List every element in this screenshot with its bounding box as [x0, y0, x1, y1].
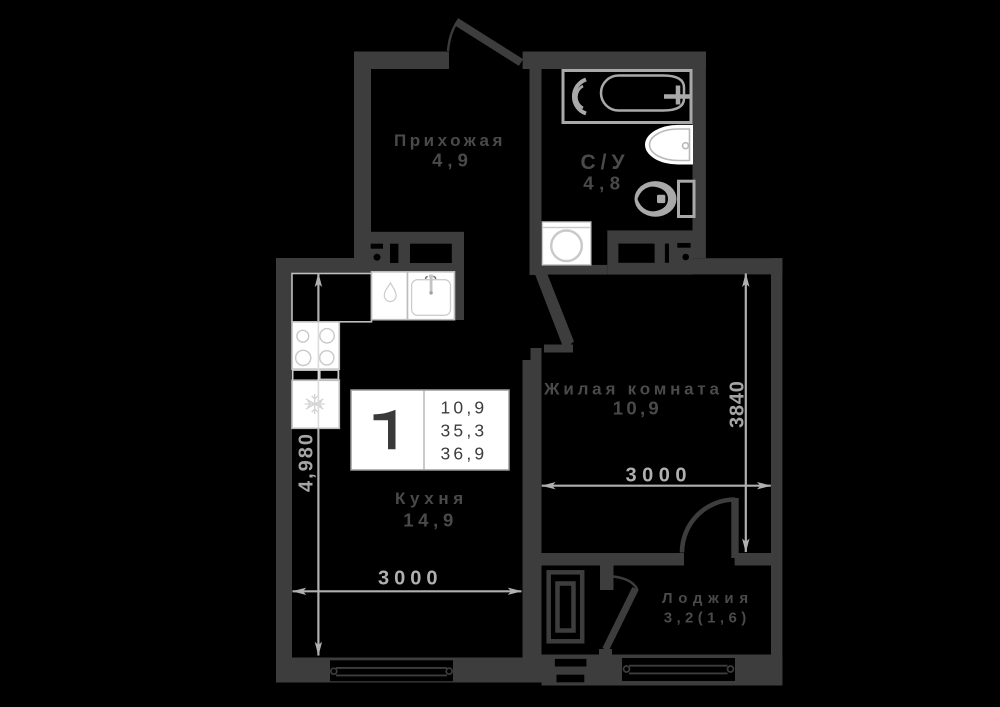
svg-text:10,9: 10,9: [441, 398, 488, 418]
svg-text:4,8: 4,8: [583, 173, 625, 194]
svg-text:35,3: 35,3: [441, 421, 488, 441]
svg-text:3000: 3000: [378, 568, 443, 590]
svg-text:4,9: 4,9: [432, 150, 473, 171]
svg-text:Лоджия: Лоджия: [662, 590, 754, 607]
svg-text:3000: 3000: [626, 465, 693, 487]
svg-text:Прихожая: Прихожая: [394, 131, 506, 150]
svg-text:10,9: 10,9: [613, 398, 662, 419]
svg-text:Кухня: Кухня: [395, 489, 468, 508]
svg-text:3840: 3840: [727, 380, 749, 428]
svg-text:14,9: 14,9: [403, 510, 458, 531]
svg-text:36,9: 36,9: [441, 444, 488, 464]
svg-text:С/У: С/У: [580, 151, 629, 174]
svg-text:4,980: 4,980: [296, 432, 318, 492]
svg-text:3,2(1,6): 3,2(1,6): [664, 610, 751, 627]
svg-text:Жилая комната: Жилая комната: [543, 380, 723, 399]
